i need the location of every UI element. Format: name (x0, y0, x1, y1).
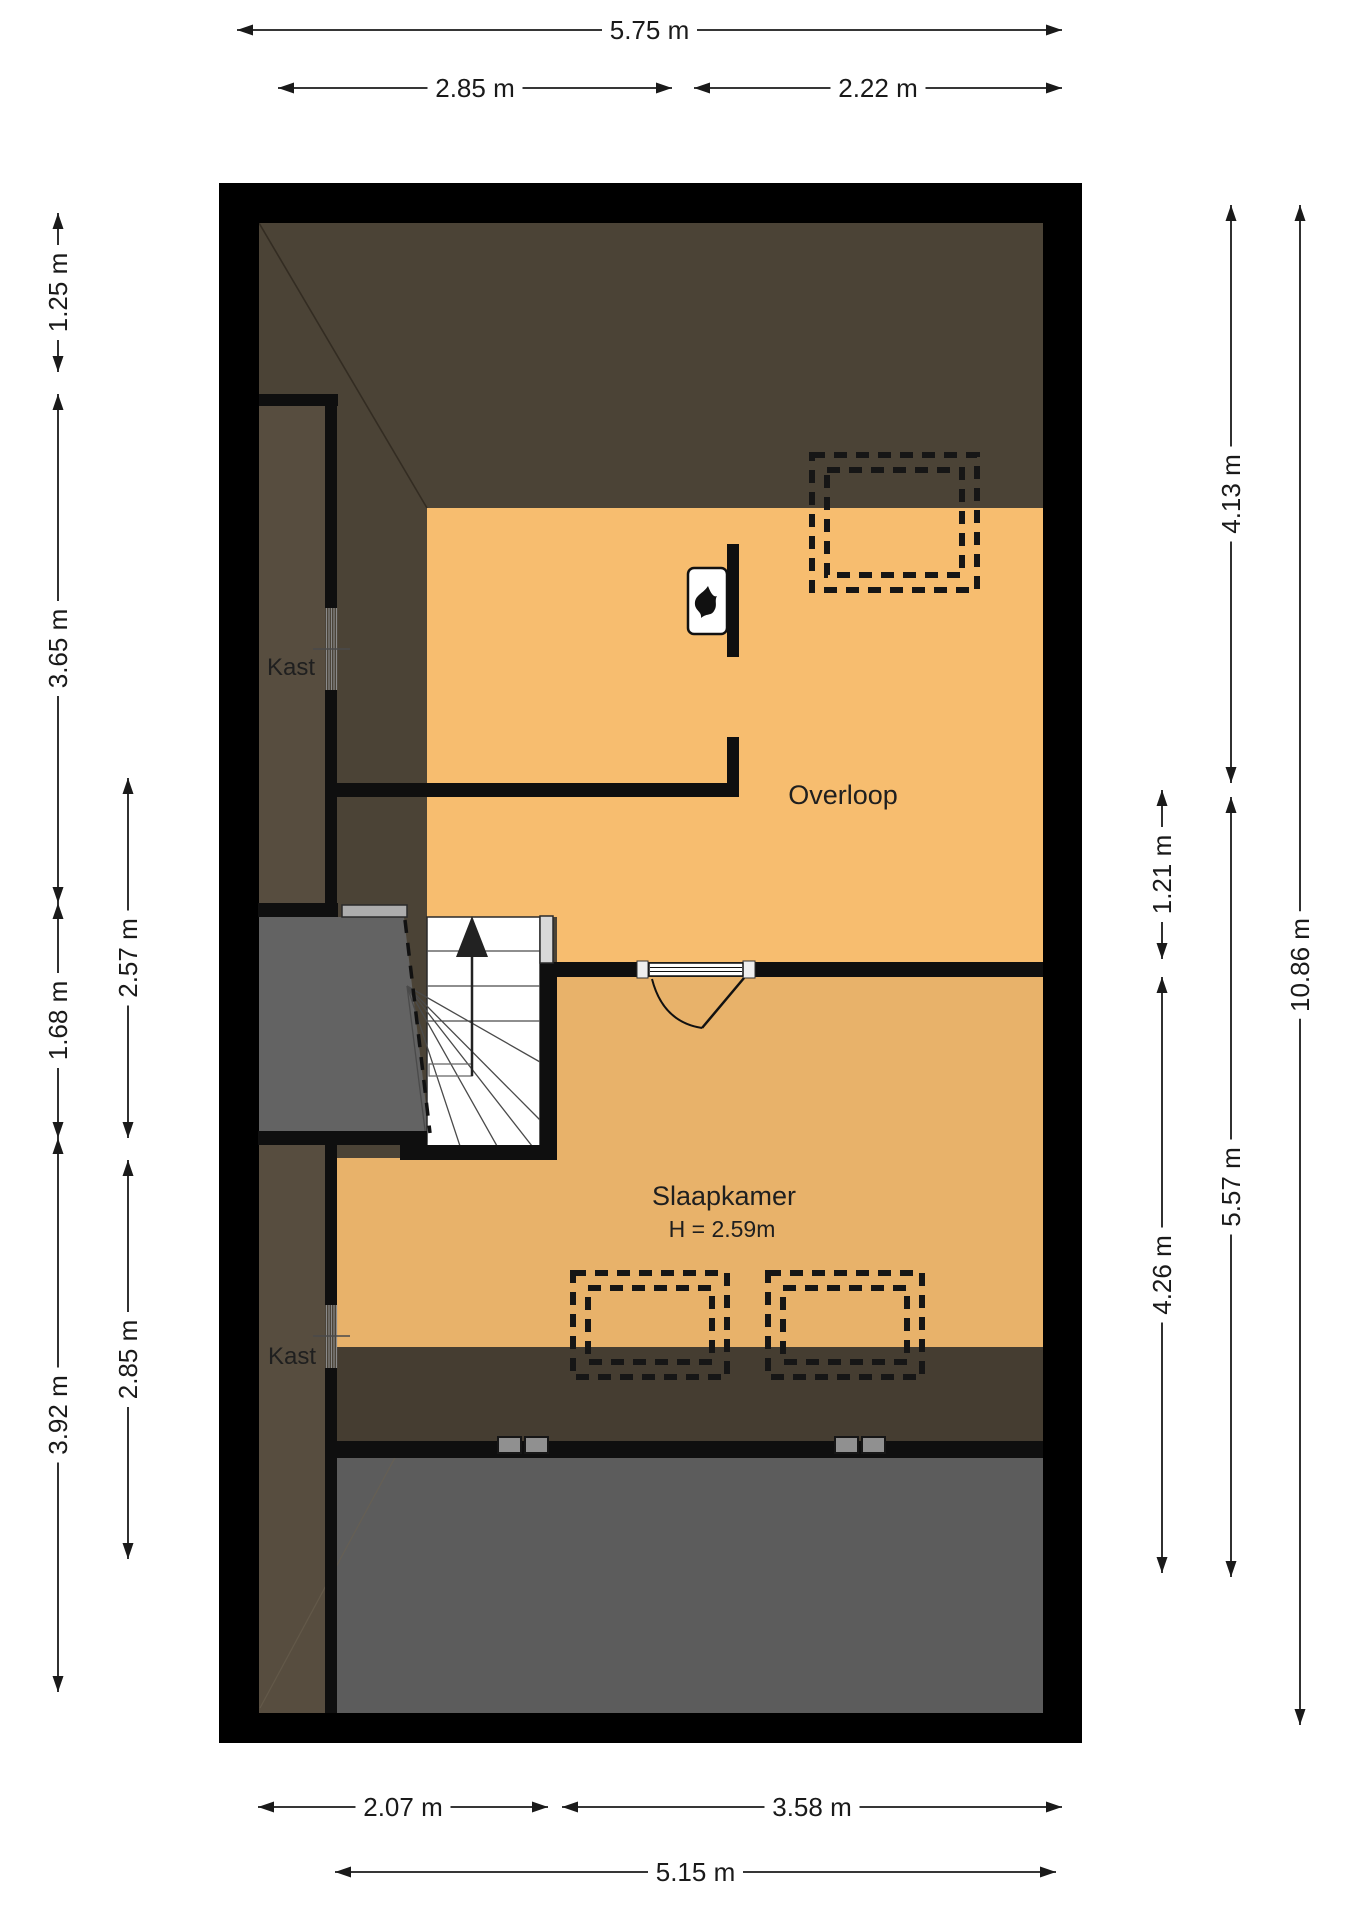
dimension-label: 2.85 m (435, 73, 515, 103)
stove-symbol (688, 568, 727, 634)
wall-landing-right (755, 962, 1043, 977)
wall-landing-left (557, 962, 637, 977)
dimension-label: 1.25 m (43, 253, 73, 333)
wall-overloop-slaapkamer (337, 783, 739, 797)
slaapkamer-height-note: H = 2.59m (669, 1216, 776, 1242)
kast-upper-label: Kast (267, 654, 315, 681)
overloop-label: Overloop (788, 780, 898, 810)
dimension-5.15m: 5.15 m (335, 1857, 1056, 1887)
floorplan-page: Overloop Slaapkamer H = 2.59m Kast Kast … (0, 0, 1358, 1920)
wall-kast-upper-bottom (258, 903, 338, 917)
stair-void (258, 917, 429, 1131)
dimension-label: 3.58 m (772, 1792, 852, 1822)
kast-lower-floor (258, 1145, 325, 1713)
dimension-label: 2.57 m (113, 918, 143, 998)
slaapkamer-label: Slaapkamer (652, 1181, 796, 1211)
dimension-10.86m: 10.86 m (1285, 205, 1315, 1725)
half-wall-cap (342, 905, 407, 917)
rear-void-strip (337, 1458, 1043, 1713)
dimension-label: 5.75 m (610, 15, 690, 45)
wall-kast-upper-right-b (325, 690, 337, 917)
dimension-4.26m: 4.26 m (1147, 977, 1177, 1573)
wall-knee (337, 1441, 1043, 1458)
dimension-5.75m: 5.75 m (237, 15, 1062, 45)
wall-stub-upper (727, 544, 739, 657)
dimension-3.92m: 3.92 m (43, 1138, 73, 1692)
dimension-label: 2.22 m (838, 73, 918, 103)
wall-stair-right (540, 962, 557, 1147)
dimension-label: 10.86 m (1285, 918, 1315, 1012)
wall-kast-lower-top (258, 1131, 427, 1145)
dimension-1.25m: 1.25 m (43, 213, 73, 372)
dimension-4.13m: 4.13 m (1216, 205, 1246, 783)
dimension-5.57m: 5.57 m (1216, 797, 1246, 1577)
wall-kast-upper-right-a (325, 394, 337, 608)
dimension-1.21m: 1.21 m (1147, 790, 1177, 959)
dimension-label: 1.68 m (43, 981, 73, 1061)
wall-kast-lower-right-a (325, 1131, 337, 1305)
dimension-label: 5.57 m (1216, 1147, 1246, 1227)
dimension-label: 3.65 m (43, 609, 73, 689)
wall-kast-lower-right-b (325, 1368, 337, 1713)
dimension-2.22m: 2.22 m (694, 73, 1062, 103)
kast-lower-label: Kast (268, 1343, 316, 1370)
dimension-label: 5.15 m (656, 1857, 736, 1887)
dimension-2.07m: 2.07 m (258, 1792, 548, 1822)
wall-stair-bottom (400, 1145, 557, 1160)
door-jamb-left (637, 961, 648, 978)
dimension-label: 4.26 m (1147, 1235, 1177, 1315)
dimension-label: 3.92 m (43, 1375, 73, 1455)
dimension-2.85m: 2.85 m (113, 1160, 143, 1559)
dimension-label: 2.85 m (113, 1320, 143, 1400)
dimension-3.58m: 3.58 m (562, 1792, 1062, 1822)
dimension-label: 1.21 m (1147, 835, 1177, 915)
dimension-3.65m: 3.65 m (43, 394, 73, 903)
dimension-label: 4.13 m (1216, 454, 1246, 534)
door-leaf-icon (649, 963, 743, 976)
dimension-label: 2.07 m (363, 1792, 443, 1822)
dimension-2.57m: 2.57 m (113, 778, 143, 1138)
dimension-2.85m: 2.85 m (278, 73, 672, 103)
floor-plan: Overloop Slaapkamer H = 2.59m Kast Kast … (0, 0, 1358, 1920)
door-jamb-right (743, 961, 755, 978)
handrail (540, 916, 553, 963)
dimension-1.68m: 1.68 m (43, 903, 73, 1138)
wall-stub-lower (727, 737, 739, 797)
